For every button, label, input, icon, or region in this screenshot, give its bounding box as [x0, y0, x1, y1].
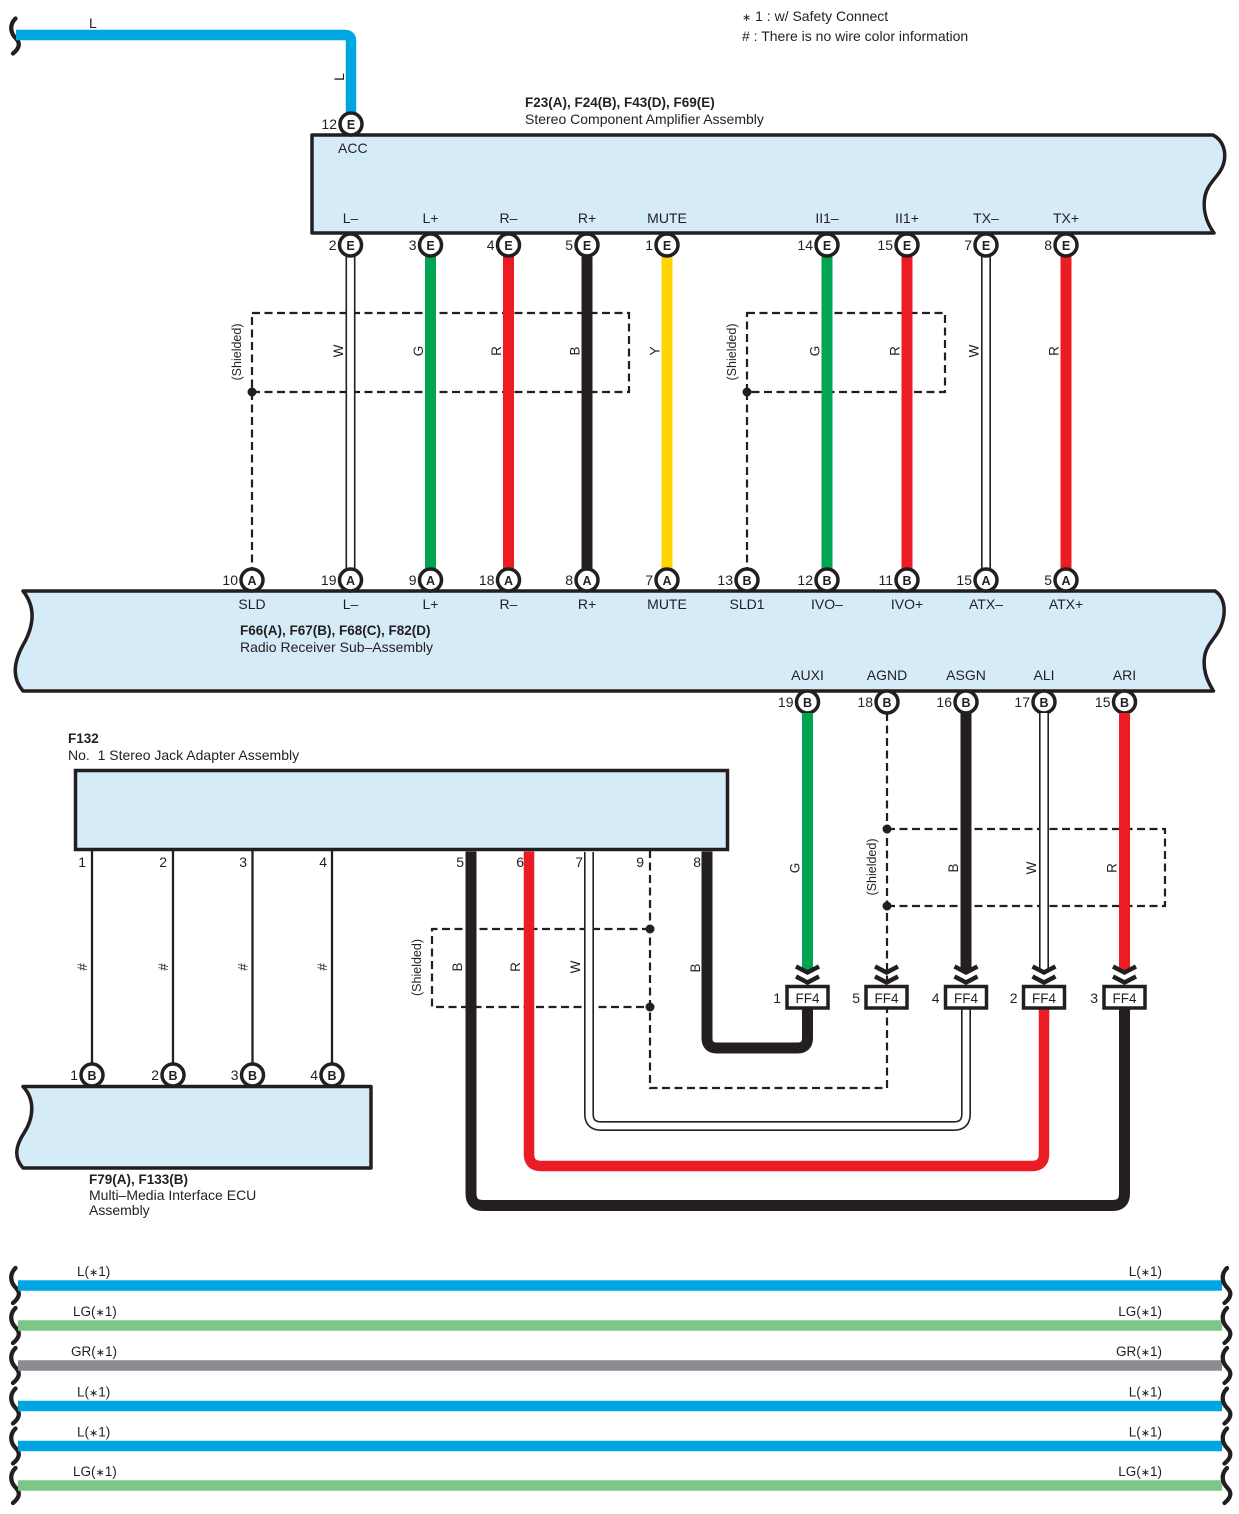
svg-text:A: A	[981, 574, 990, 588]
svg-text:12: 12	[321, 116, 337, 132]
svg-text:3: 3	[231, 1067, 239, 1083]
svg-text:B: B	[568, 346, 583, 355]
svg-text:18: 18	[857, 694, 873, 710]
svg-text:F23(A), F24(B), F43(D), F69(E): F23(A), F24(B), F43(D), F69(E)	[525, 95, 715, 110]
svg-text:B: B	[688, 963, 703, 972]
svg-text:L(∗1): L(∗1)	[1129, 1264, 1162, 1279]
svg-text:L(∗1): L(∗1)	[1129, 1385, 1162, 1400]
svg-text:AUXI: AUXI	[791, 667, 824, 683]
svg-text:#: #	[75, 963, 90, 971]
svg-text:A: A	[1061, 574, 1070, 588]
svg-text:B: B	[902, 574, 911, 588]
svg-text:(Shielded): (Shielded)	[725, 324, 739, 381]
svg-text:B: B	[822, 574, 831, 588]
svg-text:1: 1	[645, 237, 653, 253]
svg-text:10: 10	[222, 572, 238, 588]
svg-text:1: 1	[70, 1067, 78, 1083]
svg-text:ALI: ALI	[1033, 667, 1054, 683]
svg-text:19: 19	[778, 694, 794, 710]
svg-text:LG(∗1): LG(∗1)	[73, 1304, 117, 1319]
svg-text:MUTE: MUTE	[647, 596, 687, 612]
svg-text:W: W	[331, 344, 346, 357]
svg-text:L(∗1): L(∗1)	[1129, 1425, 1162, 1440]
svg-text:6: 6	[516, 854, 524, 870]
svg-text:#: #	[315, 963, 330, 971]
svg-text:AGND: AGND	[867, 667, 907, 683]
svg-text:4: 4	[310, 1067, 318, 1083]
svg-text:19: 19	[321, 572, 337, 588]
svg-text:5: 5	[565, 237, 573, 253]
svg-text:IVO–: IVO–	[811, 596, 843, 612]
svg-text:(Shielded): (Shielded)	[230, 324, 244, 381]
svg-text:L(∗1): L(∗1)	[77, 1385, 110, 1400]
svg-text:B: B	[882, 696, 891, 710]
svg-text:R–: R–	[500, 210, 518, 226]
svg-text:ARI: ARI	[1113, 667, 1136, 683]
svg-text:# : There is no wire color inf: # : There is no wire color information	[742, 28, 968, 44]
svg-text:G: G	[808, 346, 823, 357]
svg-text:13: 13	[717, 572, 733, 588]
svg-text:R+: R+	[578, 210, 596, 226]
svg-text:E: E	[823, 239, 831, 253]
svg-text:SLD1: SLD1	[729, 596, 764, 612]
svg-text:B: B	[87, 1069, 96, 1083]
svg-text:14: 14	[797, 237, 813, 253]
svg-text:E: E	[1062, 239, 1070, 253]
svg-text:R: R	[1105, 863, 1120, 873]
svg-text:IVO+: IVO+	[891, 596, 923, 612]
svg-text:9: 9	[636, 854, 644, 870]
svg-text:8: 8	[565, 572, 573, 588]
svg-text:#: #	[236, 963, 251, 971]
svg-text:R+: R+	[578, 596, 596, 612]
svg-text:15: 15	[877, 237, 893, 253]
svg-text:16: 16	[936, 694, 952, 710]
svg-text:LG(∗1): LG(∗1)	[1118, 1304, 1162, 1319]
svg-text:15: 15	[956, 572, 972, 588]
svg-text:G: G	[788, 863, 803, 874]
svg-text:R–: R–	[500, 596, 518, 612]
svg-text:B: B	[946, 863, 961, 872]
svg-text:L: L	[89, 15, 97, 31]
svg-text:E: E	[663, 239, 671, 253]
svg-text:3: 3	[239, 854, 247, 870]
svg-text:E: E	[426, 239, 434, 253]
svg-text:W: W	[967, 344, 982, 357]
svg-text:B: B	[248, 1069, 257, 1083]
svg-text:7: 7	[645, 572, 653, 588]
svg-text:B: B	[1120, 696, 1129, 710]
svg-text:G: G	[411, 346, 426, 357]
svg-text:F79(A), F133(B): F79(A), F133(B)	[89, 1172, 188, 1187]
svg-text:18: 18	[479, 572, 495, 588]
svg-text:Y: Y	[648, 346, 663, 355]
svg-text:A: A	[426, 574, 435, 588]
svg-text:L+: L+	[423, 596, 439, 612]
svg-text:W: W	[1024, 861, 1039, 874]
svg-text:5: 5	[852, 990, 860, 1006]
svg-text:B: B	[168, 1069, 177, 1083]
svg-text:8: 8	[693, 854, 701, 870]
svg-text:#: #	[156, 963, 171, 971]
svg-text:B: B	[450, 962, 465, 971]
svg-text:R: R	[489, 346, 504, 356]
svg-text:FF4: FF4	[795, 991, 819, 1006]
svg-text:(Shielded): (Shielded)	[410, 939, 424, 996]
svg-text:7: 7	[575, 854, 583, 870]
svg-text:A: A	[346, 574, 355, 588]
svg-text:A: A	[247, 574, 256, 588]
svg-text:SLD: SLD	[238, 596, 265, 612]
svg-text:8: 8	[1044, 237, 1052, 253]
svg-text:L–: L–	[343, 596, 359, 612]
svg-text:17: 17	[1014, 694, 1030, 710]
svg-text:MUTE: MUTE	[647, 210, 687, 226]
svg-text:L–: L–	[343, 210, 359, 226]
svg-text:9: 9	[409, 572, 417, 588]
svg-text:B: B	[742, 574, 751, 588]
svg-text:5: 5	[456, 854, 464, 870]
svg-text:FF4: FF4	[1112, 991, 1136, 1006]
svg-text:II1–: II1–	[815, 210, 839, 226]
svg-text:F66(A), F67(B), F68(C), F82(D): F66(A), F67(B), F68(C), F82(D)	[240, 623, 431, 638]
svg-text:5: 5	[1044, 572, 1052, 588]
svg-text:FF4: FF4	[874, 991, 898, 1006]
svg-text:GR(∗1): GR(∗1)	[71, 1344, 117, 1359]
svg-text:Multi–Media Interface ECU: Multi–Media Interface ECU	[89, 1187, 256, 1203]
svg-text:ASGN: ASGN	[946, 667, 986, 683]
svg-text:GR(∗1): GR(∗1)	[1116, 1344, 1162, 1359]
svg-text:R: R	[1047, 346, 1062, 356]
svg-text:Assembly: Assembly	[89, 1202, 150, 1218]
svg-text:E: E	[583, 239, 591, 253]
svg-text:ATX–: ATX–	[969, 596, 1003, 612]
svg-text:2: 2	[329, 237, 337, 253]
svg-text:L: L	[331, 73, 347, 81]
svg-text:E: E	[347, 118, 355, 132]
svg-text:11: 11	[878, 572, 893, 588]
svg-text:4: 4	[932, 990, 940, 1006]
svg-text:1: 1	[773, 990, 781, 1006]
svg-text:1: 1	[78, 854, 86, 870]
svg-text:ATX+: ATX+	[1049, 596, 1083, 612]
svg-text:A: A	[504, 574, 513, 588]
svg-text:(Shielded): (Shielded)	[865, 839, 879, 896]
svg-text:L(∗1): L(∗1)	[77, 1264, 110, 1279]
svg-text:R: R	[888, 346, 903, 356]
svg-text:A: A	[662, 574, 671, 588]
svg-text:FF4: FF4	[954, 991, 978, 1006]
svg-text:Stereo Component Amplifier Ass: Stereo Component Amplifier Assembly	[525, 111, 764, 127]
svg-text:No. 1 Stereo Jack Adapter Ass: No. 1 Stereo Jack Adapter Assembly	[68, 747, 299, 763]
svg-text:E: E	[903, 239, 911, 253]
svg-text:B: B	[961, 696, 970, 710]
svg-text:ACC: ACC	[338, 140, 368, 156]
svg-text:F132: F132	[68, 731, 99, 746]
svg-text:TX–: TX–	[973, 210, 999, 226]
svg-text:2: 2	[1010, 990, 1018, 1006]
svg-text:15: 15	[1095, 694, 1111, 710]
svg-text:R: R	[508, 962, 523, 972]
svg-text:FF4: FF4	[1032, 991, 1056, 1006]
svg-text:L+: L+	[423, 210, 439, 226]
svg-text:A: A	[582, 574, 591, 588]
svg-text:E: E	[982, 239, 990, 253]
svg-text:II1+: II1+	[895, 210, 919, 226]
svg-text:TX+: TX+	[1053, 210, 1079, 226]
svg-text:Radio Receiver Sub–Assembly: Radio Receiver Sub–Assembly	[240, 639, 433, 655]
svg-text:4: 4	[487, 237, 495, 253]
svg-text:E: E	[504, 239, 512, 253]
svg-text:L(∗1): L(∗1)	[77, 1425, 110, 1440]
svg-text:3: 3	[409, 237, 417, 253]
svg-text:4: 4	[319, 854, 327, 870]
svg-text:W: W	[568, 960, 583, 973]
svg-text:2: 2	[159, 854, 167, 870]
svg-text:7: 7	[964, 237, 972, 253]
svg-text:12: 12	[797, 572, 813, 588]
svg-text:B: B	[1039, 696, 1048, 710]
svg-text:B: B	[803, 696, 812, 710]
svg-text:3: 3	[1090, 990, 1098, 1006]
svg-text:LG(∗1): LG(∗1)	[73, 1464, 117, 1479]
svg-text:∗ 1 : w/ Safety Connect: ∗ 1 : w/ Safety Connect	[742, 8, 888, 24]
svg-text:B: B	[327, 1069, 336, 1083]
svg-text:E: E	[346, 239, 354, 253]
svg-text:LG(∗1): LG(∗1)	[1118, 1464, 1162, 1479]
svg-text:2: 2	[151, 1067, 159, 1083]
